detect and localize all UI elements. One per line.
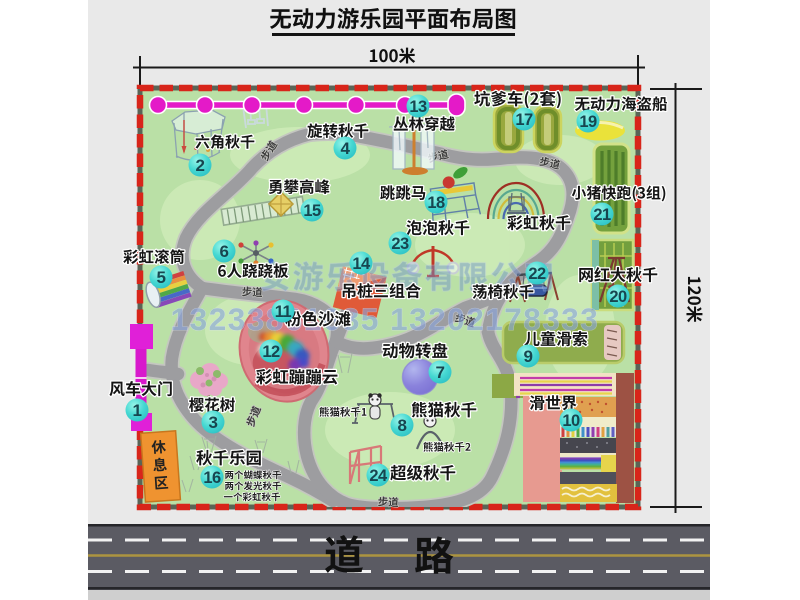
svg-text:1: 1	[133, 401, 142, 420]
svg-text:10: 10	[562, 412, 580, 430]
svg-text:13: 13	[409, 98, 427, 116]
svg-text:23: 23	[391, 235, 409, 253]
svg-text:15: 15	[303, 202, 321, 220]
svg-text:6: 6	[220, 242, 229, 261]
svg-text:8: 8	[398, 416, 407, 435]
svg-text:3: 3	[209, 413, 218, 432]
svg-text:22: 22	[528, 265, 546, 283]
svg-text:7: 7	[436, 363, 445, 382]
svg-text:5: 5	[157, 268, 166, 287]
svg-text:20: 20	[609, 288, 627, 306]
svg-text:14: 14	[352, 255, 371, 273]
svg-text:24: 24	[369, 467, 388, 485]
svg-text:11: 11	[275, 303, 292, 321]
svg-text:12: 12	[262, 343, 280, 361]
svg-text:16: 16	[203, 469, 221, 487]
svg-text:4: 4	[341, 139, 351, 158]
svg-text:21: 21	[593, 206, 611, 224]
svg-text:2: 2	[196, 156, 205, 175]
svg-text:9: 9	[524, 347, 533, 366]
svg-text:19: 19	[579, 113, 597, 131]
svg-text:17: 17	[515, 111, 533, 129]
svg-text:18: 18	[427, 194, 445, 212]
